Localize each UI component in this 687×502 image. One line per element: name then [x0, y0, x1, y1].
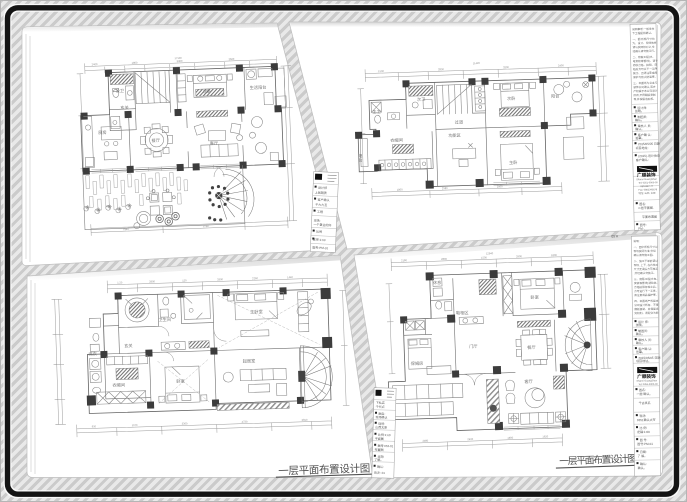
- svg-text:施工、且请注意成品: 施工、且请注意成品: [633, 71, 658, 76]
- svg-text:公司设计所有、不得: 公司设计所有、不得: [634, 303, 659, 307]
- svg-text:2080: 2080: [422, 439, 428, 443]
- svg-text:1.20: 1.20: [117, 280, 123, 284]
- svg-text:公卫: 公卫: [116, 88, 125, 93]
- svg-text:张晓。: 张晓。: [635, 108, 644, 113]
- svg-text:确认。: 确认。: [636, 331, 645, 336]
- svg-text:山西太原: 山西太原: [375, 424, 387, 429]
- svg-text:二层平面图.: 二层平面图.: [638, 205, 654, 210]
- svg-text:主卫: 主卫: [372, 108, 381, 114]
- svg-text:2600: 2600: [228, 57, 234, 61]
- svg-text:120: 120: [182, 278, 187, 282]
- svg-text:12940: 12940: [486, 251, 494, 255]
- svg-text:合格拍照存档之后、: 合格拍照存档之后、: [634, 285, 658, 289]
- svg-text:11420: 11420: [473, 61, 481, 65]
- svg-text:页次: 01: 页次: 01: [374, 470, 385, 475]
- svg-text:7940: 7940: [123, 227, 129, 231]
- svg-text:上层期表: 上层期表: [315, 190, 327, 196]
- svg-text:签章。: 签章。: [636, 349, 645, 354]
- svg-text:2400: 2400: [558, 63, 564, 67]
- svg-text:平面图: 平面图: [375, 437, 384, 441]
- svg-text:现场确认: 现场确认: [375, 414, 387, 419]
- svg-text:三、隐蔽工程(水电、: 三、隐蔽工程(水电、: [634, 277, 659, 281]
- svg-text:1900: 1900: [507, 436, 513, 440]
- svg-text:确认。: 确认。: [638, 465, 647, 470]
- svg-text:一个事业的好: 一个事业的好: [313, 222, 331, 228]
- svg-text:产权属于本公司设计: 产权属于本公司设计: [633, 89, 658, 94]
- svg-text:确认。: 确认。: [635, 126, 644, 131]
- svg-text:2850: 2850: [438, 67, 444, 71]
- svg-text:装饰公司确认,双方: 装饰公司确认,双方: [633, 85, 656, 89]
- svg-text:项目地址:: 项目地址:: [636, 145, 649, 150]
- svg-text:2810: 2810: [302, 418, 308, 422]
- svg-text:经确认请勿施工行。: 经确认请勿施工行。: [633, 49, 657, 54]
- svg-text:千古真名: 千古真名: [639, 400, 651, 405]
- svg-text:档后方可以下一工序: 档后方可以下一工序: [633, 67, 658, 72]
- svg-text:项目地址。: 项目地址。: [636, 358, 651, 363]
- svg-text:了 解。: 了 解。: [637, 453, 647, 458]
- svg-text:2580: 2580: [442, 186, 448, 190]
- svg-text:2180: 2180: [401, 258, 407, 262]
- svg-text:二、隐蔽工程(水、: 二、隐蔽工程(水、: [633, 55, 655, 59]
- svg-text:千九九五: 千九九五: [315, 202, 327, 208]
- svg-text:比例: 比例: [316, 229, 322, 234]
- svg-text:图号:PM-01: 图号:PM-01: [312, 245, 328, 251]
- svg-text:一、图中所标尺寸以: 一、图中所标尺寸以: [633, 245, 658, 249]
- svg-text:地址: 山西. 太原: 地址: 山西. 太原: [638, 191, 656, 195]
- svg-text:安装等管线)请验收、: 安装等管线)请验收、: [634, 281, 659, 285]
- svg-text:一层:确认。: 一层:确认。: [636, 391, 652, 396]
- svg-text:确认请勿施工图。: 确认请勿施工图。: [634, 253, 656, 257]
- svg-text:3300: 3300: [503, 65, 509, 69]
- svg-text:,非经确认勿施工。: ,非经确认勿施工。: [634, 271, 656, 275]
- svg-text:一、图 所标尺寸均: 一、图 所标尺寸均: [632, 37, 655, 41]
- svg-text:2900: 2900: [149, 279, 155, 283]
- svg-text:等,并保留追究权。: 等,并保留追究权。: [634, 97, 656, 101]
- svg-text:1620: 1620: [542, 434, 548, 438]
- svg-text:客户确认: 客户确认: [317, 197, 329, 203]
- svg-text:布置图: 布置图: [374, 447, 383, 452]
- svg-text:确认:: 确认:: [377, 464, 384, 469]
- svg-text:2400: 2400: [92, 62, 98, 66]
- svg-text:说明:: 说明:: [633, 239, 639, 243]
- svg-text:定稿:1:60: 定稿:1:60: [637, 429, 650, 434]
- svg-text:现场实际为准,非经: 现场实际为准,非经: [634, 249, 657, 253]
- svg-text:1070: 1070: [132, 423, 138, 427]
- svg-text:2900: 2900: [217, 277, 223, 281]
- svg-text:确认。: 确认。: [635, 117, 644, 122]
- svg-text:电安装等管线)、请予: 电安装等管线)、请予: [633, 59, 658, 64]
- svg-text:05 A: 05 A: [611, 234, 619, 238]
- svg-text:所有,不得翻版复制: 所有,不得翻版复制: [633, 93, 656, 97]
- svg-text:2900: 2900: [497, 184, 503, 188]
- svg-text:千代点: 千代点: [376, 404, 385, 409]
- svg-text:1500: 1500: [481, 255, 487, 259]
- svg-text:平面布置图: 平面布置图: [642, 214, 657, 219]
- svg-text:为、设计、现场放样: 为、设计、现场放样: [632, 41, 657, 46]
- svg-text:确认。: 确认。: [636, 340, 645, 345]
- svg-text:3360: 3360: [182, 421, 188, 425]
- svg-text:2900: 2900: [516, 254, 522, 258]
- svg-text:1800: 1800: [132, 61, 138, 65]
- svg-text:阳台: 阳台: [358, 152, 363, 163]
- svg-text:2400: 2400: [467, 437, 473, 441]
- svg-text:工程: 工程: [317, 209, 323, 214]
- svg-text:说明事项:一般条件: 说明事项:一般条件: [632, 27, 655, 31]
- svg-text:客户确认:: 客户确认:: [636, 157, 649, 162]
- svg-text:请与实际核对之,非: 请与实际核对之,非: [632, 45, 655, 49]
- svg-text:图号:PM-01: 图号:PM-01: [637, 441, 653, 446]
- svg-text:定师:1:60: 定师:1:60: [313, 237, 326, 243]
- svg-text:保护与防火防盗等。: 保护与防火防盗等。: [633, 75, 657, 80]
- svg-text:1440: 1440: [287, 275, 293, 279]
- svg-text:二、施工下单前请以: 二、施工下单前请以: [634, 259, 659, 263]
- svg-text:Tel: 0351-0000-00: Tel: 0351-0000-00: [638, 383, 658, 386]
- svg-text:了解。: 了解。: [374, 457, 383, 462]
- svg-text:17100: 17100: [174, 56, 182, 60]
- svg-text:翻版复制、并保留追: 翻版复制、并保留追: [634, 307, 659, 311]
- svg-text:1800: 1800: [551, 253, 557, 257]
- svg-text:设计师: 设计师: [318, 185, 327, 190]
- svg-text:2260: 2260: [252, 276, 258, 280]
- svg-text:1500: 1500: [378, 69, 384, 73]
- svg-text:PM·.: PM·.: [638, 227, 645, 231]
- svg-text:请注意成品保护等。: 请注意成品保护等。: [634, 293, 658, 297]
- svg-text:1800: 1800: [397, 187, 403, 191]
- svg-text:尺寸无误后方可施工: 尺寸无误后方可施工: [634, 267, 659, 271]
- svg-text:方可进行下一工序、: 方可进行下一工序、: [634, 289, 658, 293]
- svg-text:0351确认大写: 0351确认大写: [637, 417, 656, 422]
- svg-text:签章。: 签章。: [635, 135, 644, 140]
- svg-text:三、本图纸为业主与: 三、本图纸为业主与: [633, 81, 658, 86]
- svg-text:四、本图纸产权属本: 四、本图纸产权属本: [634, 299, 659, 303]
- svg-text:2800: 2800: [441, 257, 447, 261]
- svg-text:现场, 上下, 左右核对: 现场, 上下, 左右核对: [634, 263, 659, 267]
- svg-text:究权利。请配合为盼: 究权利。请配合为盼: [634, 311, 659, 315]
- svg-text:验收合格、拍照、存: 验收合格、拍照、存: [633, 63, 658, 68]
- svg-text:2760: 2760: [203, 224, 209, 228]
- svg-text:张晓。: 张晓。: [636, 322, 645, 327]
- svg-text:4730: 4730: [242, 420, 248, 424]
- svg-text:950: 950: [92, 424, 97, 428]
- svg-text:下工程提前确认。: 下工程提前确认。: [632, 31, 654, 35]
